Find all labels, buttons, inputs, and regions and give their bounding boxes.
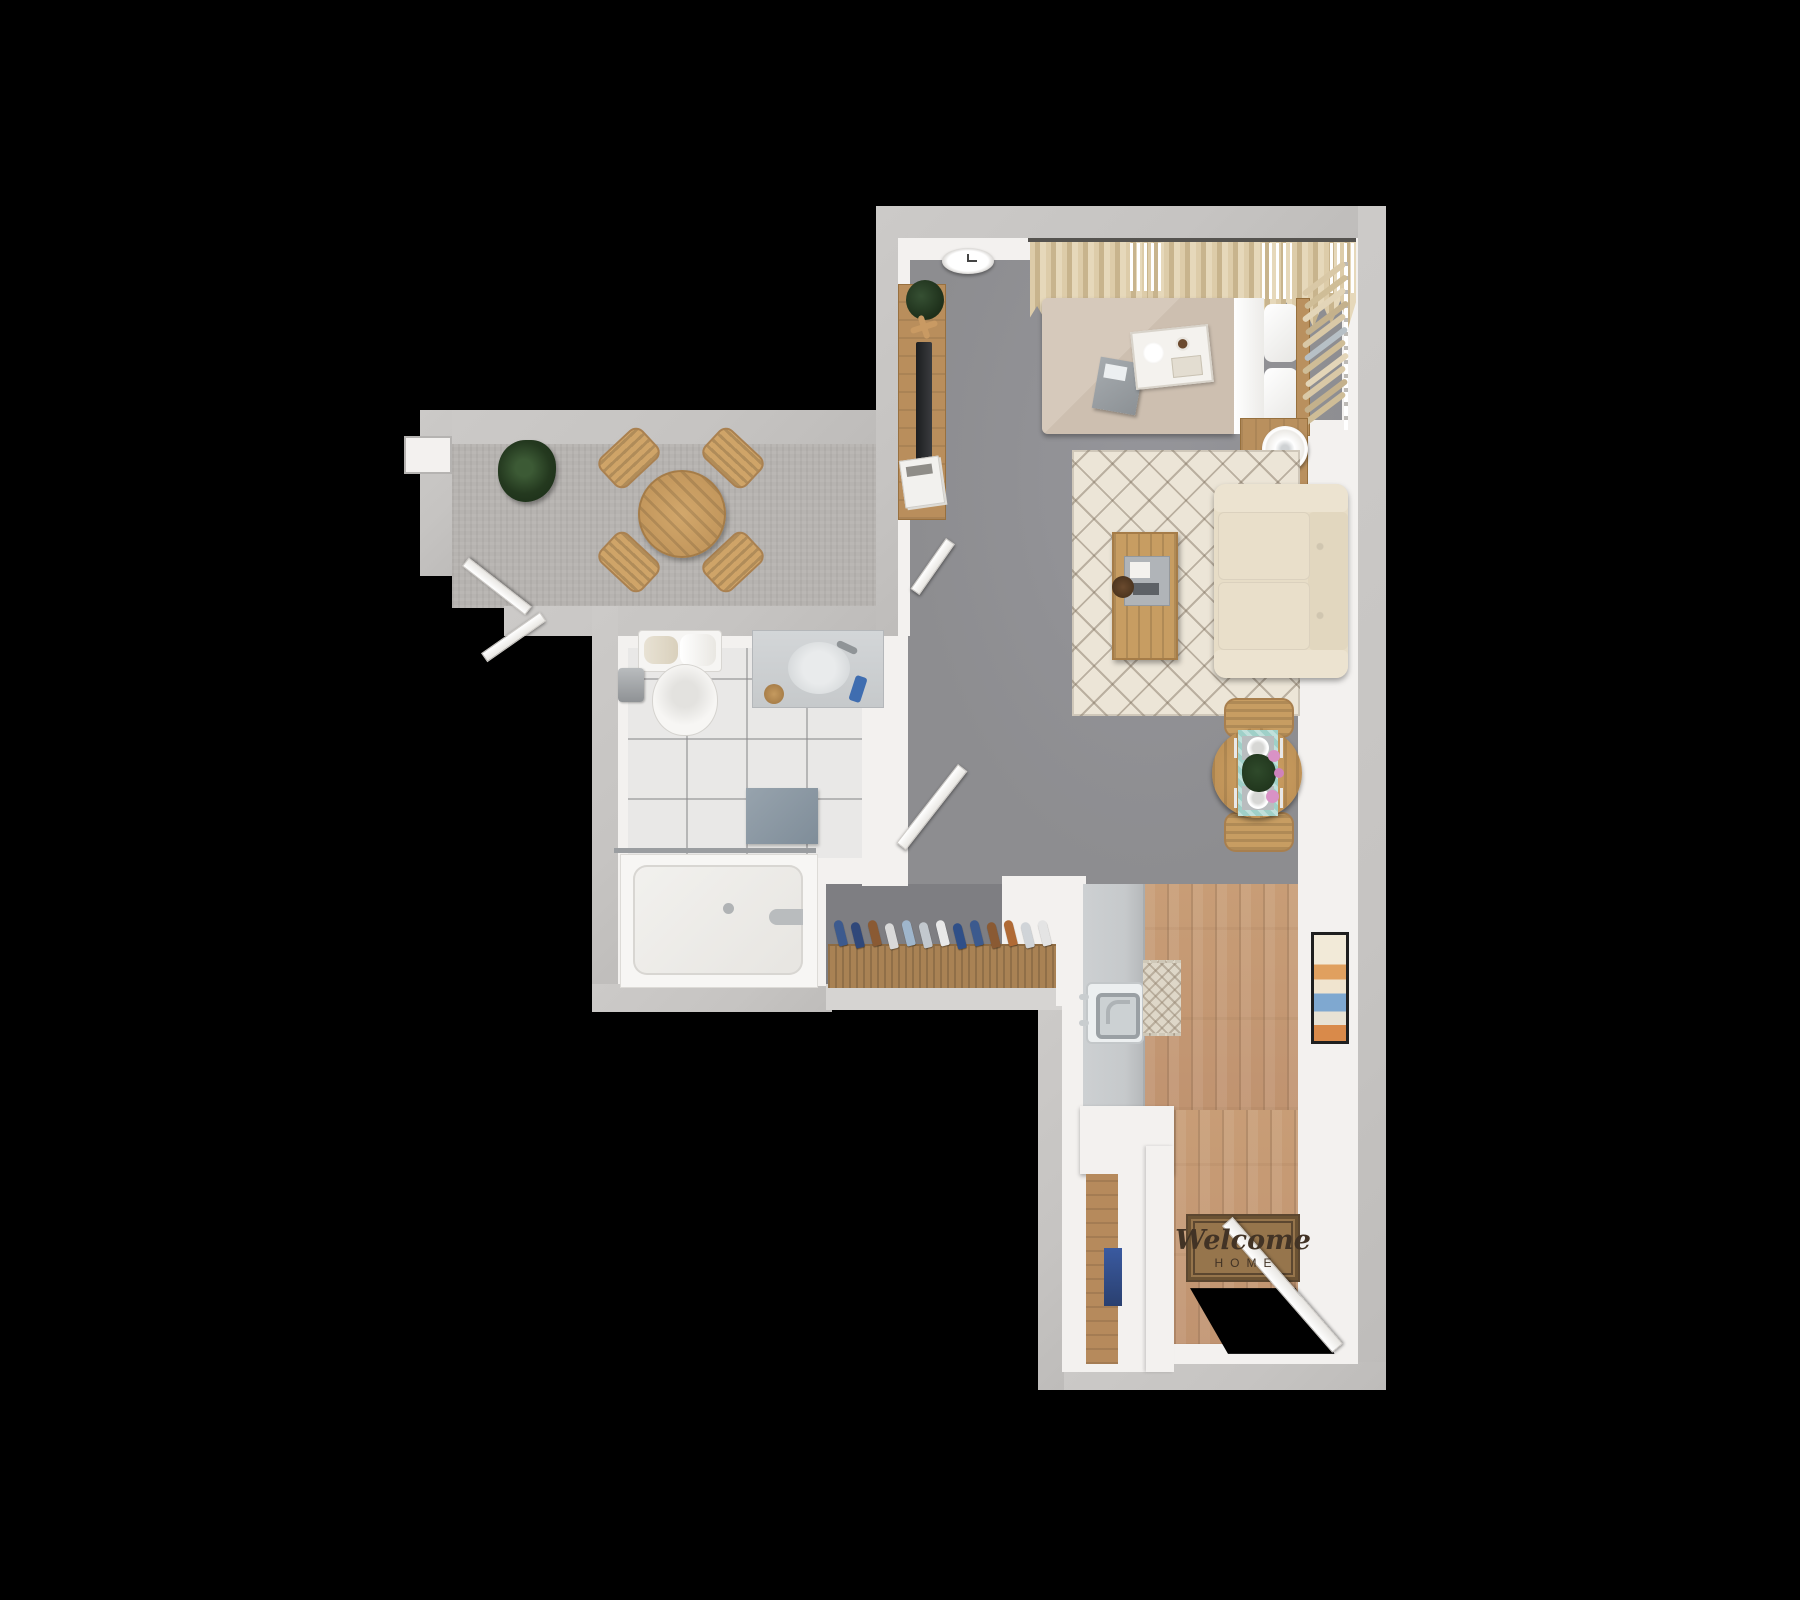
- cutlery: [1234, 738, 1237, 758]
- wall-bathroom-left: [592, 606, 618, 1012]
- console-plant: [906, 280, 944, 320]
- wall-art-print: [1314, 935, 1346, 1041]
- curtain-rail: [1028, 238, 1356, 242]
- sofa: [1214, 484, 1348, 678]
- tray-remote: [1133, 583, 1159, 595]
- cutlery: [1280, 738, 1283, 758]
- kitchen-runner-rug: [1143, 960, 1181, 1036]
- sink-faucet: [1106, 1000, 1130, 1024]
- sofa-seat-cushion: [1218, 582, 1310, 650]
- bathtub: [620, 854, 818, 988]
- magazine-cover: [906, 463, 933, 477]
- sink-handle: [1079, 1020, 1089, 1026]
- bed-sheet: [1234, 298, 1264, 434]
- tray-plate: [1141, 341, 1165, 365]
- magazine-stack: [899, 455, 945, 508]
- coaster: [1112, 576, 1134, 598]
- toilet-towels: [680, 634, 716, 666]
- toilet-paper-holder: [618, 668, 644, 702]
- wall-notch: [404, 436, 452, 474]
- wall-right: [1358, 206, 1386, 1390]
- bathtub-faucet: [769, 909, 803, 925]
- wall-entry-left: [1038, 1004, 1064, 1390]
- soap-dish: [764, 684, 784, 704]
- kitchen-sink: [1086, 982, 1144, 1044]
- centerpiece-flower: [1268, 750, 1280, 762]
- clock-hand: [968, 260, 977, 262]
- floor-plan-canvas: Welcome HOME: [0, 0, 1800, 1600]
- wall-top: [876, 206, 1386, 238]
- sofa-back-cushion: [1308, 512, 1348, 650]
- wall-balcony-left: [420, 410, 452, 576]
- doormat-text-line2: HOME: [1208, 1256, 1279, 1270]
- patio-table: [638, 470, 726, 558]
- sink-handle: [1079, 994, 1089, 1000]
- wall-clock: [942, 248, 994, 274]
- centerpiece-flower: [1274, 768, 1284, 778]
- wall-bathroom-bottom: [592, 984, 832, 1012]
- speaker-label: [1103, 364, 1127, 382]
- wall-art-frame: [1311, 932, 1349, 1044]
- sofa-seat-cushion: [1218, 512, 1310, 580]
- sofa-armrest: [1214, 650, 1348, 678]
- tv-flatscreen: [916, 342, 932, 462]
- pantry-blue-bin: [1104, 1248, 1122, 1306]
- breakfast-tray: [1130, 324, 1214, 390]
- cutlery: [1280, 788, 1283, 808]
- tray-notepad: [1130, 562, 1150, 578]
- bath-mat: [746, 788, 818, 844]
- bathtub-drain: [723, 903, 734, 914]
- tray-magazine: [1171, 355, 1203, 378]
- tray-mug: [1175, 336, 1190, 351]
- welcome-doormat: Welcome HOME: [1186, 1214, 1300, 1282]
- toilet-bowl: [652, 664, 718, 736]
- cutlery: [1234, 788, 1237, 808]
- pantry-pillar: [1146, 1146, 1174, 1372]
- doormat-text-line1: Welcome: [1175, 1227, 1311, 1254]
- closet-rod: [1344, 262, 1348, 430]
- shoe-rack: [828, 944, 1056, 988]
- toilet-towels: [644, 636, 678, 664]
- vanity-sink: [788, 642, 850, 694]
- sofa-armrest: [1214, 484, 1348, 512]
- vertical-blinds: [1262, 243, 1292, 299]
- vertical-blinds: [1130, 243, 1164, 291]
- dining-chair: [1224, 812, 1294, 852]
- centerpiece-flower: [1266, 790, 1279, 803]
- shower-rod: [614, 848, 816, 853]
- bed-pillow: [1264, 304, 1298, 362]
